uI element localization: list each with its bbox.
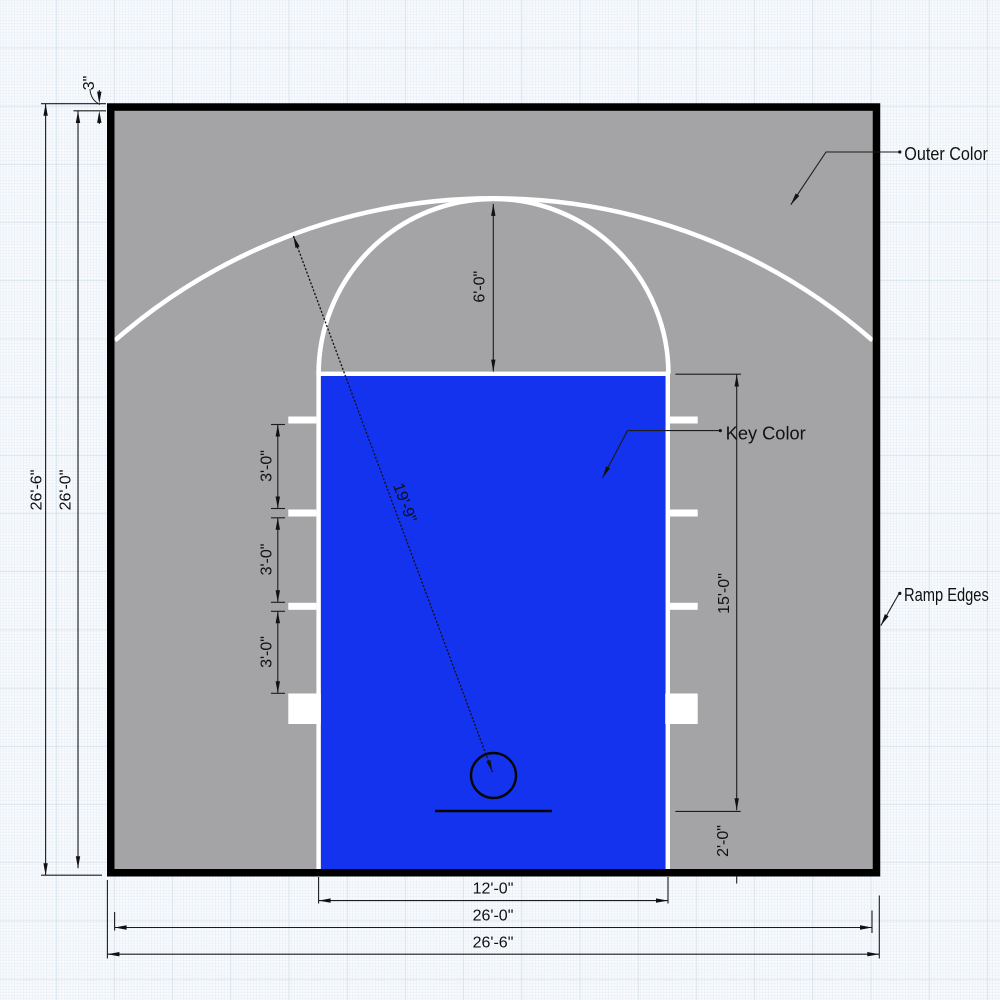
- svg-text:26'-6": 26'-6": [473, 935, 514, 952]
- svg-text:2'-0": 2'-0": [715, 825, 732, 857]
- svg-text:Outer Color: Outer Color: [904, 144, 988, 164]
- svg-text:26'-0": 26'-0": [57, 470, 74, 511]
- svg-text:Key Color: Key Color: [726, 424, 806, 444]
- svg-text:3'-0": 3'-0": [258, 544, 275, 576]
- svg-text:26'-6": 26'-6": [28, 470, 45, 511]
- svg-text:12'-0": 12'-0": [473, 880, 514, 897]
- svg-text:3": 3": [81, 76, 98, 91]
- svg-text:26'-0": 26'-0": [473, 908, 514, 925]
- svg-text:3'-0": 3'-0": [258, 636, 275, 668]
- svg-text:3'-0": 3'-0": [258, 450, 275, 482]
- svg-text:Ramp Edges: Ramp Edges: [904, 585, 989, 605]
- svg-text:15'-0": 15'-0": [716, 573, 733, 614]
- svg-text:6'-0": 6'-0": [471, 271, 488, 303]
